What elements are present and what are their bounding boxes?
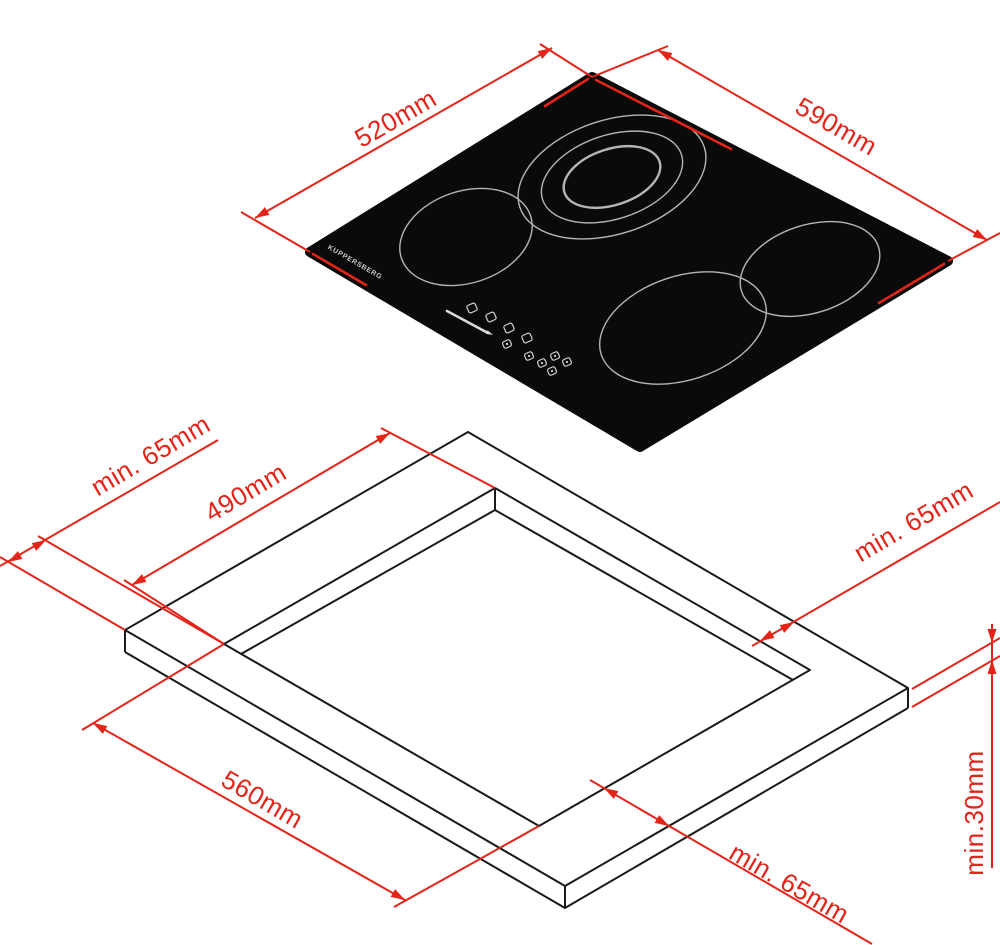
- extension-line: [241, 212, 310, 252]
- dimension-clearance-right: [752, 502, 1000, 646]
- dimension-label-clearance-front: min. 65mm: [724, 837, 854, 930]
- dimension-line: [93, 723, 405, 900]
- worktop-view: 490mm 560mm min. 65mm min. 65mm: [0, 409, 1000, 944]
- dimension-label-clearance-left: min. 65mm: [85, 409, 215, 502]
- extension-line: [394, 826, 539, 907]
- dimension-cutout-width: [82, 644, 539, 907]
- dimension-label-clearance-right: min. 65mm: [848, 475, 978, 568]
- extension-line: [592, 46, 668, 77]
- hob-view: KUPPERSBERG: [241, 44, 1000, 447]
- cutout-opening: [224, 488, 810, 826]
- dimension-label-thickness: min.30mm: [959, 750, 989, 875]
- dimension-line: [0, 440, 218, 566]
- extension-line: [82, 644, 224, 730]
- dimension-label-cutout-width: 560mm: [216, 764, 308, 835]
- cutout-inner-wall-edge: [241, 510, 495, 654]
- diagram-canvas: KUPPERSBERG: [0, 0, 1000, 945]
- dimension-cutout-depth: [124, 428, 495, 644]
- dimension-label-hob-width: 590mm: [790, 91, 882, 162]
- installation-diagram: KUPPERSBERG: [0, 0, 1000, 945]
- extension-line: [0, 557, 125, 630]
